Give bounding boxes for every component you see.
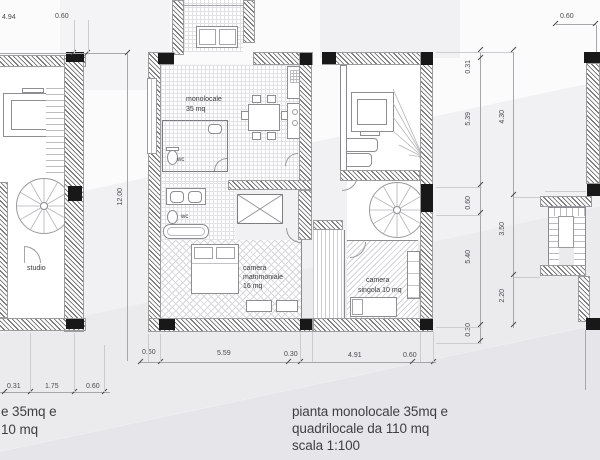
caption-main: quadrilocale da 110 mq	[292, 420, 429, 437]
captions: e 35mq e 10 mq pianta monolocale 35mq e …	[0, 0, 600, 460]
caption-main: scala 1:100	[292, 437, 360, 454]
floor-plan-sheet: studio monolocale 35 mq	[0, 0, 600, 460]
caption-left-fragment: 10 mq	[1, 421, 38, 438]
caption-main: pianta monolocale 35mq e	[292, 403, 448, 420]
caption-left-fragment: e 35mq e	[1, 403, 57, 420]
